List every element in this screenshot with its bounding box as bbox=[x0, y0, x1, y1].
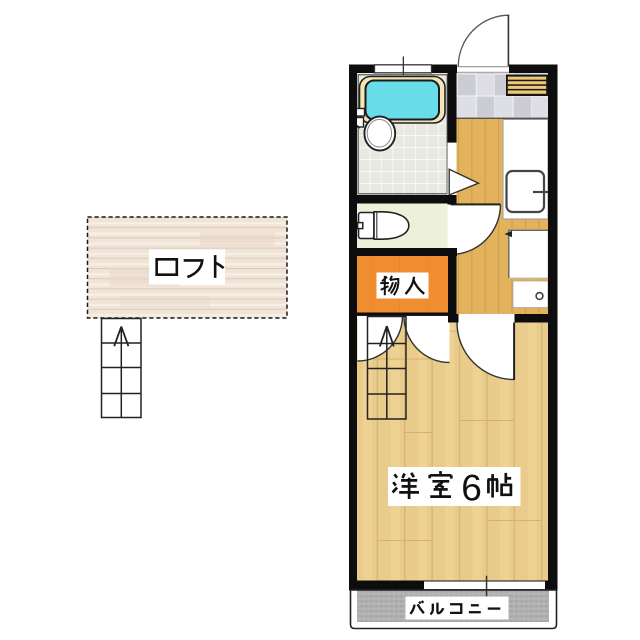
svg-text:6: 6 bbox=[461, 468, 482, 509]
